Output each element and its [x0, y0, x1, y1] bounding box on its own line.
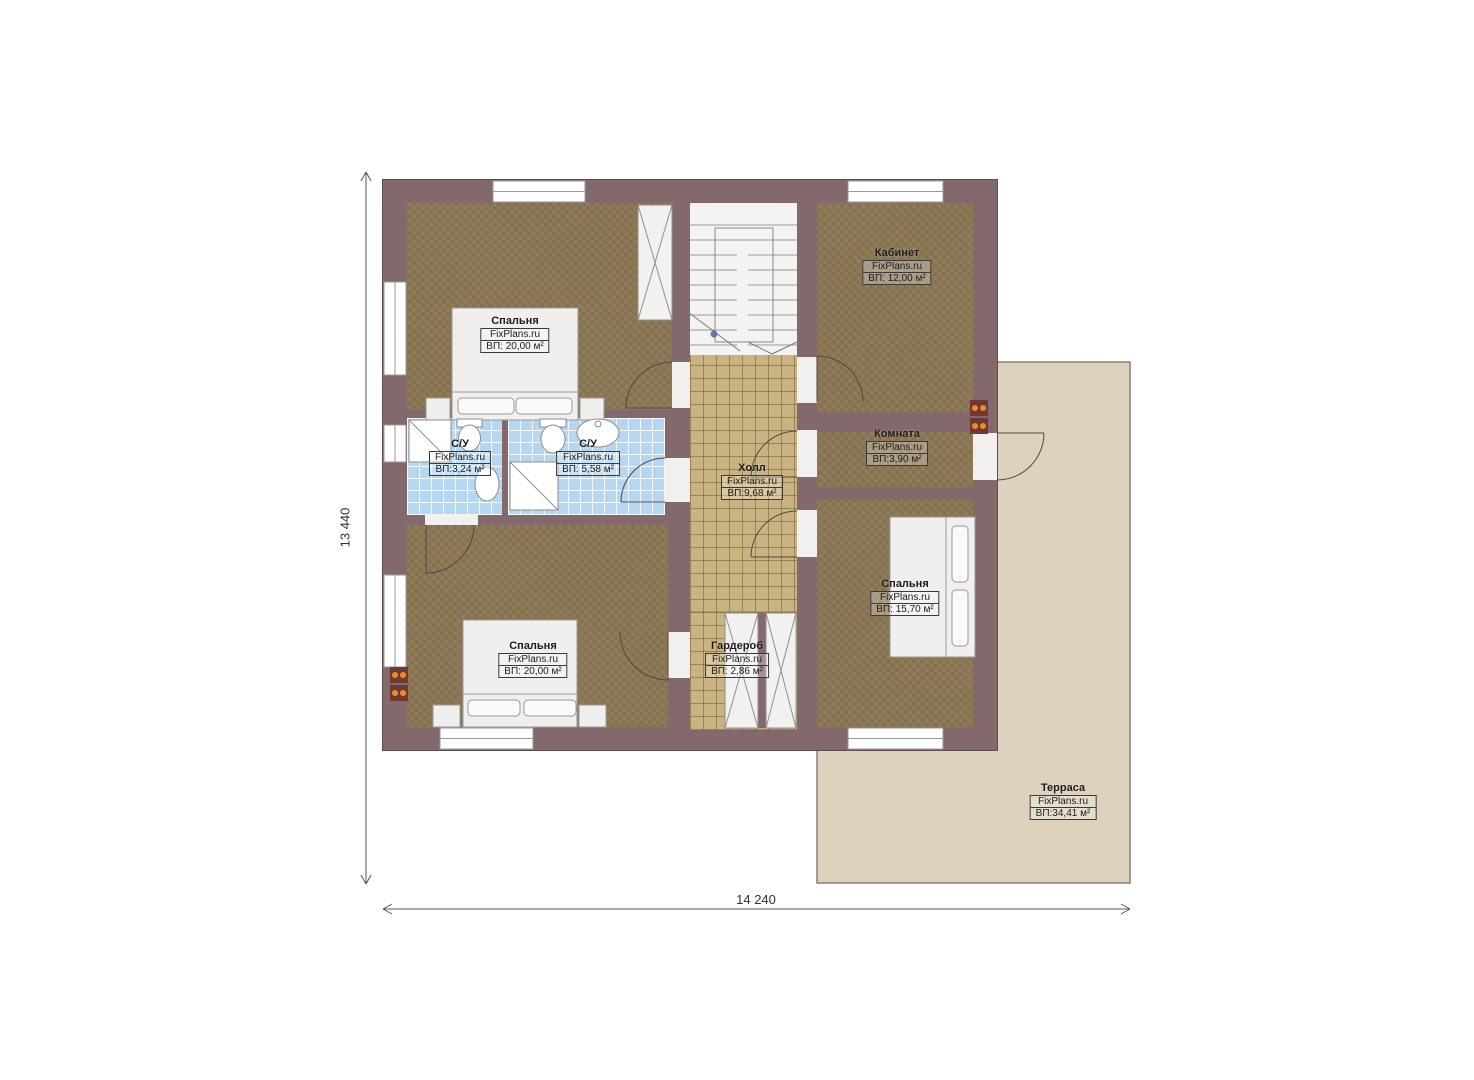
brand-text: FixPlans.ru: [871, 592, 938, 604]
room-name: Спальня: [498, 640, 567, 652]
room-area: ВП:3,90 м²: [867, 454, 927, 465]
room-area: ВП:9,68 м²: [722, 488, 782, 499]
brand-text: FixPlans.ru: [863, 261, 930, 273]
window-left-upper: [384, 282, 406, 375]
dimension-bottom-value: 14 240: [736, 892, 776, 907]
label-bath-right: С/У FixPlans.ru ВП: 5,58 м²: [556, 438, 620, 477]
nightstand: [580, 398, 604, 420]
room-name: Гардероб: [705, 640, 769, 652]
brand-text: FixPlans.ru: [557, 452, 619, 464]
staircase: [688, 225, 797, 355]
room-name: Спальня: [870, 578, 939, 590]
label-wardrobe: Гардероб FixPlans.ru ВП: 2,86 м²: [705, 640, 769, 679]
window-top-cabinet: [848, 181, 943, 202]
window-left-lower: [384, 575, 406, 667]
room-name: С/У: [556, 438, 620, 450]
room-area: ВП: 2,86 м²: [706, 666, 768, 677]
floor-plan-canvas: Спальня FixPlans.ru ВП: 20,00 м² Кабинет…: [0, 0, 1474, 1080]
window-bottom-bedroom: [440, 728, 533, 749]
brand-text: FixPlans.ru: [430, 452, 490, 464]
brand-text: FixPlans.ru: [867, 442, 927, 454]
room-area: ВП: 20,00 м²: [481, 341, 548, 352]
dimension-line-left: [361, 172, 371, 884]
room-name: Кабинет: [862, 247, 931, 259]
brand-text: FixPlans.ru: [1031, 796, 1096, 808]
label-room-small: Комната FixPlans.ru ВП:3,90 м²: [866, 428, 928, 467]
room-name: Терраса: [1030, 782, 1097, 794]
linework-layer: [0, 0, 1474, 1080]
label-bedroom-right: Спальня FixPlans.ru ВП: 15,70 м²: [870, 578, 939, 617]
window-left-bath: [384, 425, 406, 462]
closet-wardrobe-right: [766, 613, 796, 728]
room-area: ВП: 12,00 м²: [863, 273, 930, 284]
stair-direction-dot: [711, 331, 718, 338]
nightstand: [433, 705, 460, 727]
label-bedroom-top-left: Спальня FixPlans.ru ВП: 20,00 м²: [480, 315, 549, 354]
window-bottom-right-bedroom: [848, 728, 943, 749]
brand-text: FixPlans.ru: [481, 329, 548, 341]
brand-text: FixPlans.ru: [706, 654, 768, 666]
room-name: Комната: [866, 428, 928, 440]
room-area: ВП: 20,00 м²: [499, 666, 566, 677]
dimension-left-value: 13 440: [337, 508, 352, 548]
room-name: С/У: [429, 438, 491, 450]
radiator-icon: [970, 400, 988, 434]
nightstand: [426, 398, 450, 420]
room-area: ВП: 5,58 м²: [557, 464, 619, 475]
label-cabinet: Кабинет FixPlans.ru ВП: 12,00 м²: [862, 247, 931, 286]
nightstand: [579, 705, 606, 727]
label-hall: Холл FixPlans.ru ВП:9,68 м²: [721, 462, 783, 501]
room-area: ВП:34,41 м²: [1031, 808, 1096, 819]
room-area: ВП:3,24 м²: [430, 464, 490, 475]
brand-text: FixPlans.ru: [499, 654, 566, 666]
room-name: Холл: [721, 462, 783, 474]
room-name: Спальня: [480, 315, 549, 327]
label-bath-left: С/У FixPlans.ru ВП:3,24 м²: [429, 438, 491, 477]
closet-bedroom-top-left: [638, 205, 672, 320]
label-terrace: Терраса FixPlans.ru ВП:34,41 м²: [1030, 782, 1097, 821]
room-area: ВП: 15,70 м²: [871, 604, 938, 615]
label-bedroom-bottom-left: Спальня FixPlans.ru ВП: 20,00 м²: [498, 640, 567, 679]
window-top-bedroom: [493, 181, 585, 202]
radiator-icon: [390, 667, 408, 701]
brand-text: FixPlans.ru: [722, 476, 782, 488]
